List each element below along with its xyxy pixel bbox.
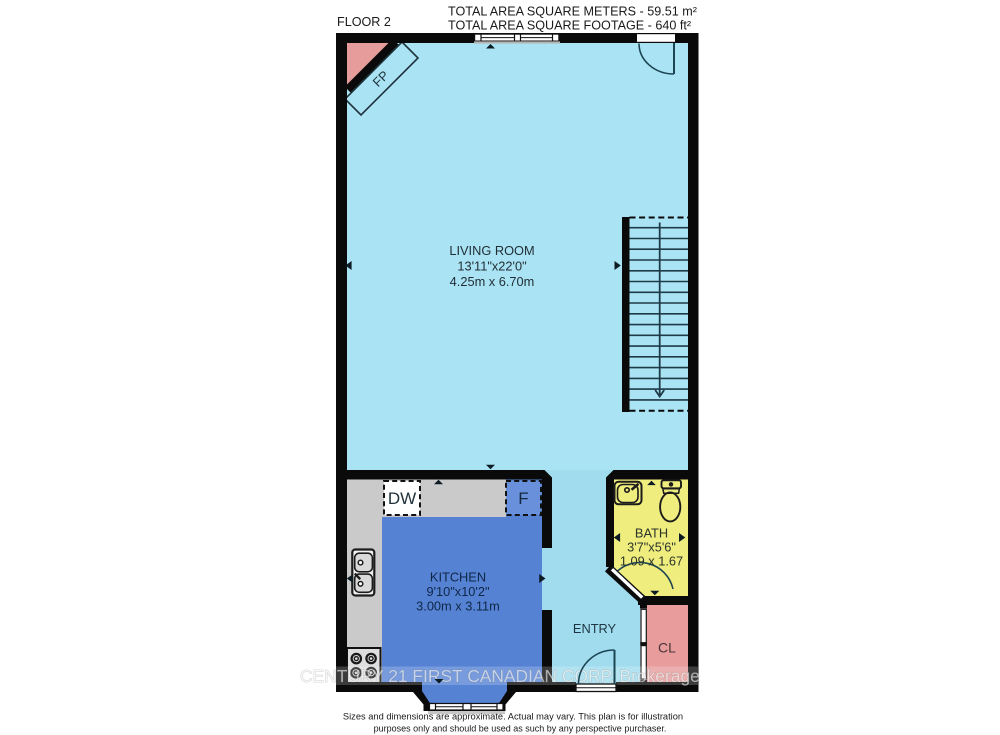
svg-text:ENTRY: ENTRY <box>573 621 617 636</box>
svg-text:1.09 x 1.67: 1.09 x 1.67 <box>620 554 683 569</box>
svg-text:TOTAL AREA SQUARE FOOTAGE - 64: TOTAL AREA SQUARE FOOTAGE - 640 ft² <box>448 19 691 33</box>
svg-text:13'11"x22'0": 13'11"x22'0" <box>457 259 526 274</box>
svg-text:3.00m x 3.11m: 3.00m x 3.11m <box>416 599 500 614</box>
svg-text:BATH: BATH <box>635 526 668 541</box>
svg-text:FLOOR 2: FLOOR 2 <box>337 15 391 29</box>
svg-text:CENTURY 21 FIRST CANADIAN CORP: CENTURY 21 FIRST CANADIAN CORP, Brokerag… <box>300 666 700 686</box>
svg-text:3'7"x5'6": 3'7"x5'6" <box>627 540 676 555</box>
svg-text:9'10"x10'2": 9'10"x10'2" <box>426 584 489 599</box>
svg-text:LIVING ROOM: LIVING ROOM <box>449 243 534 258</box>
svg-text:purposes only and should be us: purposes only and should be used as such… <box>374 723 667 733</box>
svg-text:CL: CL <box>658 640 676 656</box>
svg-text:Sizes and dimensions are appro: Sizes and dimensions are approximate. Ac… <box>343 712 683 722</box>
svg-text:TOTAL AREA SQUARE METERS - 59.: TOTAL AREA SQUARE METERS - 59.51 m² <box>448 5 697 19</box>
svg-text:4.25m x 6.70m: 4.25m x 6.70m <box>450 274 535 289</box>
svg-text:KITCHEN: KITCHEN <box>430 570 486 585</box>
svg-text:DW: DW <box>388 489 416 508</box>
svg-text:F: F <box>518 489 528 508</box>
